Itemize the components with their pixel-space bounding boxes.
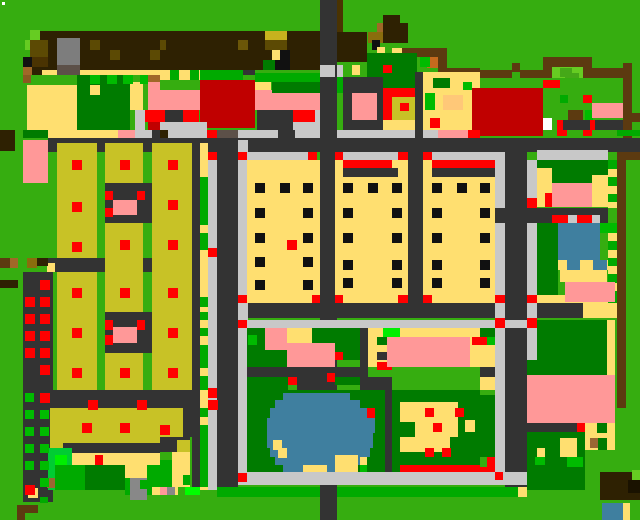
red-marker (398, 152, 408, 160)
window (303, 208, 313, 218)
red-marker (168, 288, 178, 298)
olive-building (177, 440, 190, 452)
window (480, 278, 490, 288)
bush (200, 328, 208, 336)
bush-bright (248, 335, 257, 345)
tree-patch (335, 377, 360, 385)
sand-field (48, 130, 118, 138)
bush (255, 73, 320, 82)
window (343, 233, 353, 243)
brown-field (400, 23, 408, 43)
red-marker (472, 337, 480, 345)
pink-building (160, 487, 167, 495)
sand-field (335, 455, 358, 472)
red-marker (120, 240, 130, 250)
dirt-path (543, 57, 592, 67)
sidewalk (160, 122, 207, 130)
gravel-block (57, 65, 80, 75)
red-marker (543, 80, 560, 88)
sand-field (583, 303, 617, 318)
green-marker (25, 410, 34, 419)
road (217, 140, 238, 487)
bush (608, 177, 617, 186)
sidewalk (527, 223, 537, 360)
bush (170, 70, 179, 80)
road (415, 72, 423, 138)
dirt-path (480, 70, 512, 78)
sand-field (72, 453, 160, 465)
red-marker (400, 465, 480, 472)
sidewalk (495, 152, 505, 208)
bush-bright (107, 75, 117, 84)
red-marker (432, 160, 495, 168)
mustard-block (265, 31, 287, 40)
green-marker (40, 444, 49, 453)
bush (200, 233, 208, 250)
window (280, 50, 290, 60)
pink-building (265, 328, 287, 350)
red-marker (168, 328, 178, 338)
red-marker (72, 242, 82, 252)
red-marker (168, 240, 178, 250)
road (320, 485, 337, 520)
sand-field (287, 328, 312, 343)
sand-field (623, 503, 630, 520)
red-marker (288, 377, 297, 385)
window (480, 233, 490, 243)
window (480, 208, 490, 218)
gravel-block (217, 130, 238, 138)
red-marker (25, 314, 35, 324)
red-marker (527, 318, 537, 328)
red-marker (583, 95, 592, 103)
window (392, 208, 402, 218)
bush (183, 475, 190, 485)
dark-olive (265, 40, 287, 50)
bush (200, 297, 208, 307)
window (343, 260, 353, 270)
red-marker (442, 448, 451, 457)
green-marker (40, 427, 49, 436)
sidewalk (135, 130, 152, 138)
pink-building (160, 90, 200, 110)
red-marker (495, 295, 505, 303)
window (392, 260, 402, 270)
dark-olive (160, 40, 166, 50)
sand-field (480, 377, 495, 390)
tree-patch (312, 328, 320, 343)
window (255, 280, 265, 290)
dark-red-building (472, 88, 480, 130)
red-marker (25, 297, 35, 307)
red-marker (312, 295, 320, 303)
window (432, 208, 442, 218)
dark-brown-block (628, 480, 640, 493)
tree-patch (598, 438, 607, 450)
pink-building (287, 343, 320, 367)
red-marker (72, 368, 82, 378)
window (343, 183, 353, 193)
water (267, 418, 375, 433)
water (267, 433, 373, 448)
sand-field (383, 120, 417, 130)
road (408, 152, 423, 303)
green-marker (40, 478, 49, 487)
water (558, 223, 600, 260)
dirt-path (543, 67, 552, 78)
pink-building (352, 93, 377, 120)
tree-patch (85, 465, 125, 490)
dirt-block (377, 23, 383, 32)
dirt-block (23, 75, 31, 83)
red-marker (383, 88, 417, 97)
red-marker (480, 337, 487, 345)
sidewalk (295, 130, 320, 138)
sand-field (278, 448, 287, 458)
dirt-path (623, 63, 632, 150)
brown-field (0, 130, 15, 151)
red-marker (335, 352, 343, 360)
window (255, 183, 265, 193)
window (280, 183, 290, 193)
bush-bright (608, 223, 617, 233)
olive-block (238, 40, 248, 50)
sand-field (125, 465, 147, 478)
tree-patch (433, 78, 450, 88)
red-marker (40, 297, 50, 307)
green-marker (25, 461, 34, 470)
red-marker (400, 103, 409, 111)
red-marker (88, 400, 98, 410)
window (303, 233, 313, 243)
road (247, 367, 368, 377)
dark-red-building (200, 80, 255, 128)
red-marker (25, 348, 35, 358)
window (303, 280, 313, 290)
water (567, 260, 580, 270)
dirt-path (632, 113, 640, 122)
road (165, 110, 183, 122)
stone-block (57, 38, 80, 65)
light-grass (632, 470, 640, 480)
red-marker (137, 191, 145, 200)
olive-building (63, 408, 160, 443)
red-marker (105, 191, 113, 200)
red-marker (208, 152, 217, 160)
red-marker (527, 198, 537, 208)
olive-building (152, 143, 192, 390)
bush (200, 425, 208, 487)
sidewalk (337, 65, 343, 77)
tree-patch (537, 320, 607, 375)
bush-bright (140, 75, 148, 84)
window (275, 60, 290, 70)
dirt-path (0, 258, 10, 268)
red-marker (208, 400, 218, 410)
road (360, 377, 392, 390)
bush-bright (600, 223, 608, 233)
olive-building (105, 223, 143, 312)
red-marker (207, 130, 217, 138)
sand-field (27, 85, 77, 130)
tree-patch (480, 395, 495, 457)
window (255, 257, 265, 267)
dirt-block (23, 67, 32, 75)
window (255, 233, 265, 243)
road (480, 367, 495, 377)
sand-field (272, 50, 280, 60)
water (593, 260, 607, 270)
red-marker (137, 400, 147, 410)
red-marker (120, 423, 130, 433)
sand-field (608, 233, 617, 241)
bush-bright (123, 75, 133, 84)
sidewalk (238, 130, 278, 138)
red-marker (577, 423, 585, 432)
light-orange-block (443, 95, 463, 110)
bush (190, 70, 199, 80)
red-marker (343, 160, 392, 168)
brown-field (383, 15, 400, 43)
sand-field (560, 270, 607, 282)
dirt-path (512, 63, 520, 72)
red-marker (160, 425, 170, 435)
tree-patch (597, 423, 607, 433)
red-marker (423, 152, 432, 160)
green-marker (25, 427, 34, 436)
window (368, 183, 378, 193)
bush-bright (463, 82, 472, 90)
bush-bright (535, 457, 545, 465)
red-marker (105, 320, 113, 330)
red-marker (293, 110, 315, 122)
red-marker (527, 295, 537, 303)
dirt-path (583, 67, 592, 78)
bush-bright (567, 457, 583, 467)
pink-building (527, 375, 615, 423)
red-marker (468, 130, 480, 138)
red-marker (120, 368, 130, 378)
sidewalk (247, 320, 537, 328)
dirt-block (148, 75, 160, 82)
road (432, 168, 495, 177)
road (192, 143, 200, 490)
white-marker (543, 118, 552, 130)
sand-field (608, 186, 617, 194)
pink-building (113, 327, 137, 343)
red-marker (120, 288, 130, 298)
window (392, 278, 402, 288)
sand-field (130, 82, 143, 110)
red-marker (495, 318, 505, 328)
olive-block (27, 258, 37, 268)
water (283, 393, 350, 400)
red-marker (425, 408, 434, 417)
window (480, 183, 490, 193)
red-marker (168, 160, 178, 170)
bush-bright (90, 75, 100, 84)
window (255, 208, 265, 218)
water (270, 408, 375, 418)
road (595, 120, 623, 130)
red-marker (105, 335, 113, 345)
sidewalk (495, 223, 505, 472)
red-marker (25, 485, 35, 495)
bush (200, 177, 208, 225)
brown-block (32, 57, 48, 67)
red-marker (208, 388, 217, 398)
pink-building (387, 337, 470, 367)
red-marker (327, 373, 335, 382)
tree-patch (537, 223, 558, 295)
road (152, 130, 160, 138)
sidewalk (135, 110, 145, 130)
sand-field (352, 65, 360, 75)
red-marker (383, 97, 392, 120)
bush-bright (360, 465, 367, 472)
red-marker (168, 200, 178, 210)
road (63, 443, 160, 453)
bush (160, 460, 172, 487)
tree-patch (377, 337, 387, 345)
bush (200, 408, 208, 417)
sidewalk (208, 152, 217, 490)
window (392, 183, 402, 193)
sand-field (608, 169, 617, 177)
green-marker (40, 461, 49, 470)
sand-field (320, 465, 327, 472)
dark-olive (110, 50, 120, 60)
bush (55, 465, 85, 490)
tree-patch (247, 350, 287, 367)
pink-building (592, 103, 623, 118)
red-marker (238, 152, 247, 160)
red-marker (335, 295, 343, 303)
sidewalk (343, 152, 398, 160)
water (602, 503, 623, 520)
bush (608, 160, 617, 169)
pink-building (320, 343, 335, 368)
sidewalk (168, 130, 207, 138)
pink-building (438, 130, 468, 138)
bush (217, 487, 527, 497)
road (563, 120, 590, 130)
red-marker (583, 130, 592, 136)
red-marker (238, 295, 247, 303)
sand-field (518, 487, 527, 497)
dirt-path (520, 70, 543, 78)
dark-red-building (148, 122, 160, 130)
sidewalk (238, 472, 527, 485)
sidewalk (247, 152, 308, 160)
red-marker (430, 118, 440, 128)
bush (200, 345, 208, 368)
window (303, 183, 313, 193)
road (297, 377, 320, 390)
stone-block (167, 487, 175, 495)
tree-patch (272, 82, 320, 93)
red-marker (577, 215, 592, 223)
red-marker (40, 393, 50, 403)
green-marker (25, 444, 34, 453)
red-marker (183, 110, 199, 122)
red-marker (40, 348, 50, 358)
brown-field (32, 67, 42, 75)
window (343, 208, 353, 218)
green-marker (25, 393, 34, 402)
white-marker (2, 2, 5, 5)
red-marker (367, 408, 375, 418)
red-marker (287, 240, 297, 250)
bush-bright (487, 337, 495, 345)
window (392, 233, 402, 243)
red-marker (120, 160, 130, 170)
red-marker (72, 202, 82, 212)
red-marker (455, 408, 464, 417)
red-marker (72, 160, 82, 170)
sidewalk (320, 65, 335, 77)
bush (200, 376, 208, 390)
sand-field (592, 175, 608, 207)
red-marker (40, 331, 50, 341)
town-map (0, 0, 640, 520)
tree-patch (23, 130, 48, 138)
red-marker (383, 65, 392, 73)
red-marker (425, 448, 434, 457)
red-marker (238, 473, 247, 482)
red-marker (105, 208, 113, 217)
pink-building (148, 82, 160, 110)
sand-field (608, 250, 617, 258)
window (303, 257, 313, 267)
red-marker (95, 455, 103, 465)
sidewalk (537, 150, 608, 160)
bush-bright (420, 57, 430, 67)
red-marker (398, 295, 408, 303)
sidewalk (293, 122, 320, 130)
red-marker (72, 288, 82, 298)
red-marker (495, 472, 503, 480)
red-marker (82, 423, 92, 433)
window (432, 233, 442, 243)
red-marker (168, 368, 178, 378)
sand-field (608, 266, 617, 274)
brown-field (37, 258, 48, 266)
sand-field (465, 420, 475, 432)
lime-bush (383, 328, 400, 337)
red-marker (238, 320, 247, 328)
sand-field (90, 85, 100, 95)
window (432, 260, 442, 270)
sand-field (560, 438, 577, 457)
red-marker (40, 365, 50, 375)
window (480, 260, 490, 270)
red-marker (335, 152, 343, 160)
sidewalk (592, 215, 600, 223)
road (257, 110, 293, 130)
window (457, 183, 467, 193)
pink-building (118, 130, 135, 138)
olive-building (50, 408, 63, 450)
pink-building (113, 200, 137, 215)
window (432, 278, 442, 288)
dirt-block (590, 438, 598, 448)
red-marker (25, 331, 35, 341)
dark-olive (90, 40, 100, 50)
pink-building (565, 282, 615, 302)
tree-patch (247, 377, 288, 390)
bush (617, 130, 640, 136)
